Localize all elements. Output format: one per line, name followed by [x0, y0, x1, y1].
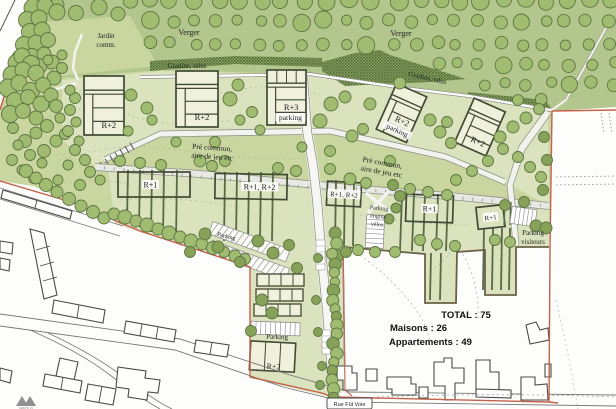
svg-text:TOTAL : 75: TOTAL : 75	[441, 310, 491, 321]
svg-text:Maisons : 26: Maisons : 26	[390, 323, 447, 334]
svg-text:R+1: R+1	[422, 204, 436, 213]
svg-text:vélos: vélos	[371, 221, 385, 228]
svg-text:R+1, R+2: R+1, R+2	[330, 190, 359, 199]
svg-text:Gradins, talus: Gradins, talus	[168, 62, 207, 70]
svg-text:Appartements : 49: Appartements : 49	[389, 337, 472, 348]
svg-text:Parking: Parking	[522, 229, 544, 237]
svg-text:R+1: R+1	[484, 213, 497, 222]
svg-text:R+1: R+1	[143, 181, 157, 190]
svg-text:visiteurs: visiteurs	[521, 238, 545, 246]
svg-text:R+3: R+3	[284, 102, 299, 112]
svg-text:Jardin: Jardin	[97, 32, 115, 40]
svg-text:R+1, R+2: R+1, R+2	[244, 182, 276, 192]
svg-text:R+2: R+2	[195, 112, 210, 122]
svg-text:parking: parking	[279, 113, 302, 122]
svg-text:Verger: Verger	[178, 28, 200, 37]
svg-text:Parking: Parking	[266, 333, 289, 342]
svg-text:Verger: Verger	[390, 29, 412, 38]
svg-text:comm.: comm.	[96, 41, 115, 49]
svg-text:Rue Fût Voie: Rue Fût Voie	[334, 402, 366, 408]
svg-text:R+2: R+2	[101, 120, 116, 130]
